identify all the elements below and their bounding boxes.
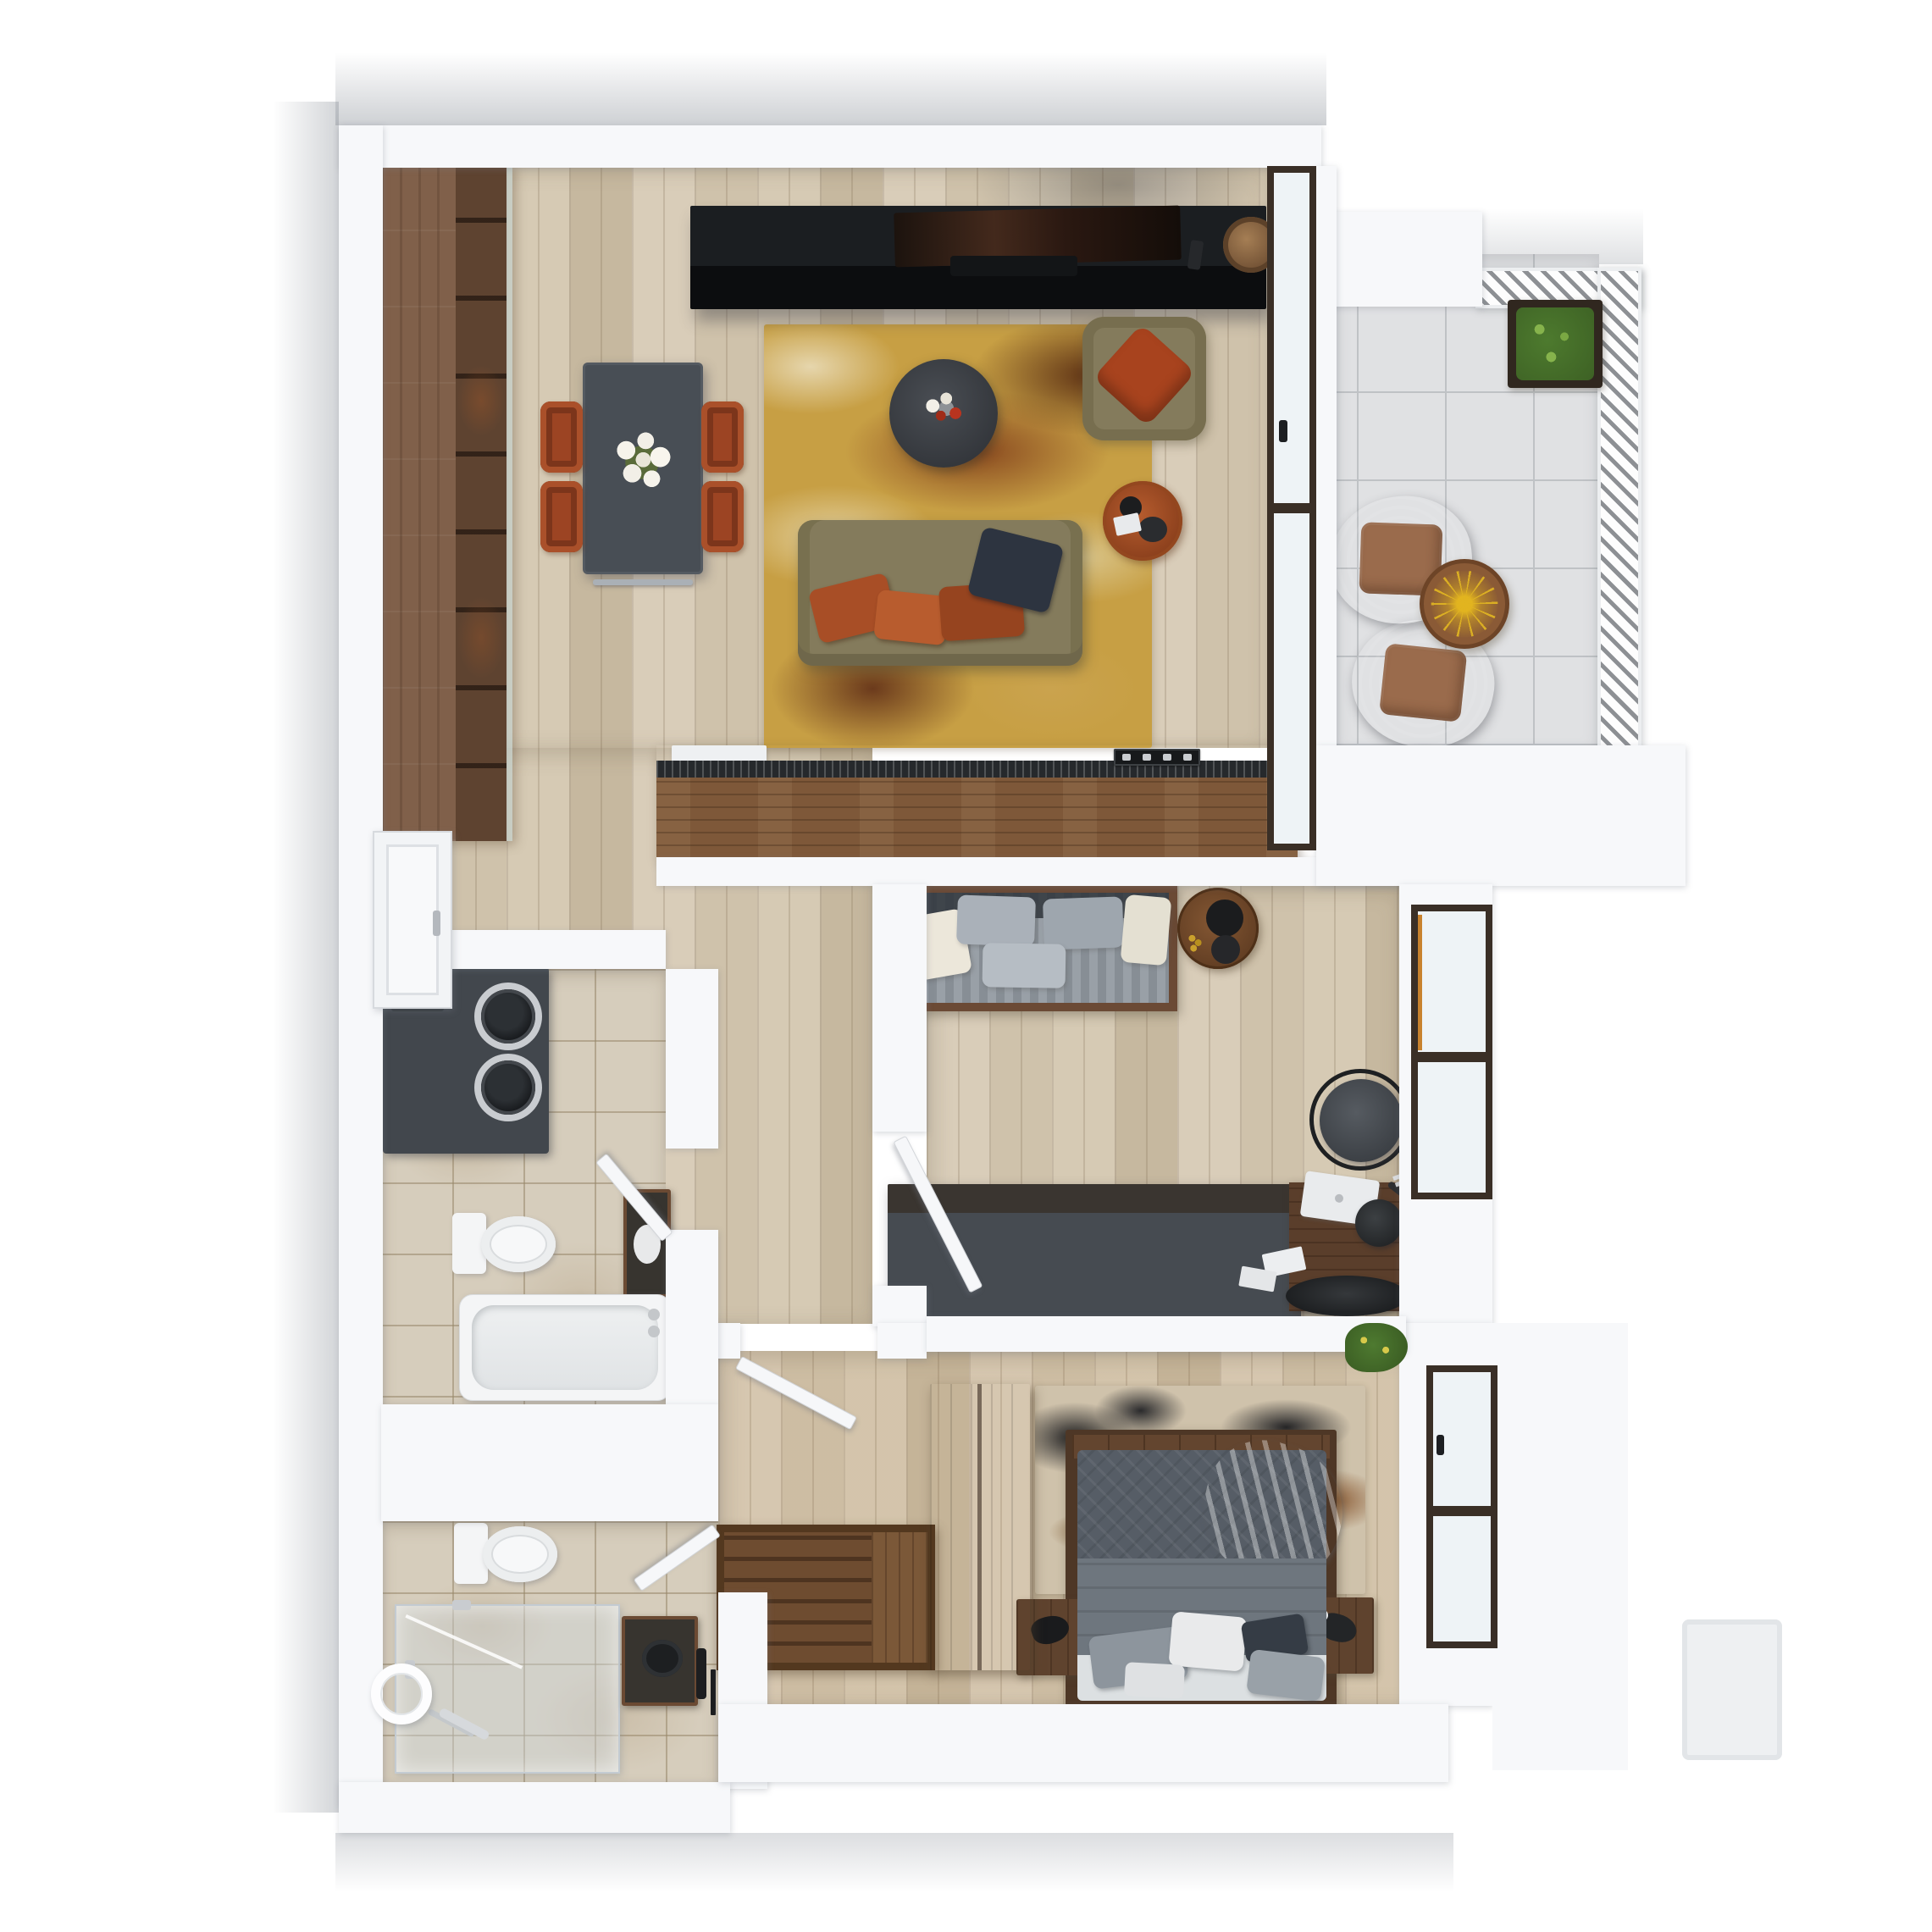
towel-ring: [371, 1664, 432, 1724]
exterior-ledge-bedroom: [1492, 1323, 1628, 1770]
floor-plan-canvas: [0, 0, 1932, 1932]
dining-flower-centerpiece: [612, 429, 673, 496]
kitchen-cabinet-top: [381, 163, 456, 841]
shower-glass-handle: [452, 1600, 471, 1610]
cooktop-knob: [1163, 754, 1171, 761]
wall-bathroom1-east-upper: [666, 969, 718, 1149]
window-rail: [1272, 503, 1311, 513]
daybed-pillow-gray: [983, 943, 1066, 988]
living-balcony-glass-door: [1267, 166, 1316, 850]
sofa-pillow-orange: [873, 590, 949, 645]
window-handle: [1437, 1435, 1444, 1455]
cooktop-knob: [1122, 754, 1131, 761]
bed-pillow-white: [1168, 1611, 1247, 1671]
bathtub-basin: [472, 1305, 658, 1390]
wall-hall-entry-right: [877, 1323, 927, 1359]
nightstand-decor: [1028, 1611, 1072, 1648]
living-side-table: [1103, 481, 1182, 561]
wall-office-bedroom: [927, 1316, 1406, 1352]
wall-south-west: [339, 1782, 730, 1833]
wall-hall-office-upper: [872, 884, 927, 1132]
daybed-pillow-gray: [956, 894, 1036, 946]
cooktop-knob: [1143, 754, 1151, 761]
double-bed: [1077, 1450, 1326, 1701]
wicker-chair-cushion: [1379, 643, 1467, 722]
office-side-table: [1177, 888, 1259, 969]
wall-bathroom1-east-lower: [666, 1230, 718, 1404]
kitchen-cabinet-fronts: [456, 163, 507, 841]
toilet-bowl: [483, 1526, 557, 1582]
wall-north: [339, 125, 1321, 168]
desk-tray: [1286, 1276, 1408, 1316]
dryer-drum-door: [481, 1060, 535, 1115]
balcony-door-handle: [1279, 420, 1287, 442]
wall-south-east: [718, 1704, 1448, 1782]
kitchen-island-wood-front: [656, 778, 1298, 859]
entry-door-handle: [433, 911, 440, 936]
wardrobe: [930, 1384, 1030, 1670]
magazine: [1113, 512, 1142, 536]
toilet: [454, 1521, 557, 1584]
office-window: [1411, 905, 1492, 1199]
window-rail: [1431, 1506, 1492, 1516]
dining-chair: [701, 401, 744, 473]
bathtub: [459, 1294, 671, 1401]
balcony-planter: [1508, 300, 1603, 388]
laptop-logo: [1334, 1193, 1343, 1203]
bathroom2-sink-cabinet: [622, 1616, 698, 1706]
daybed: [894, 884, 1177, 1011]
kitchen-cabinet-glass-edge: [507, 163, 512, 841]
wall-balcony-south: [1316, 745, 1686, 886]
dining-table-bench-bar: [593, 579, 693, 585]
washer-drum-door: [481, 989, 535, 1044]
exterior-shadow-left: [273, 102, 339, 1813]
gold-sprig: [1187, 932, 1203, 954]
exterior-shadow-top: [335, 53, 1326, 125]
coffee-table-flowers: [916, 386, 971, 435]
cooktop-knob: [1183, 754, 1192, 761]
window-frame-accent: [1418, 915, 1422, 1050]
dining-chair: [540, 401, 583, 473]
teacup: [1211, 935, 1240, 964]
wall-hall-office-lower: [872, 1286, 927, 1326]
toilet: [452, 1211, 559, 1277]
soundbar: [950, 256, 1077, 276]
armchair-cushion: [1093, 324, 1195, 426]
kitchen-countertop: [656, 761, 1298, 778]
wall-under-counter: [656, 857, 1406, 886]
bedroom-window: [1426, 1365, 1497, 1648]
planter-greenery: [1516, 307, 1594, 380]
armchair: [1082, 317, 1206, 440]
exterior-shadow-bottom: [335, 1833, 1453, 1892]
dining-chair: [540, 481, 583, 552]
toilet-bowl: [481, 1216, 556, 1272]
decor-bowl: [1138, 517, 1167, 542]
desk-lamp: [1355, 1199, 1403, 1247]
window-rail: [1416, 1052, 1487, 1062]
bed-pillow-white: [1124, 1662, 1185, 1699]
dining-chair: [701, 481, 744, 552]
daybed-pillow-white: [1121, 894, 1172, 966]
cooktop: [1114, 749, 1200, 766]
bathtub-faucet: [648, 1309, 660, 1320]
bench-seat: [872, 1532, 927, 1663]
shower-tray: [1682, 1619, 1782, 1760]
kitchen-cabinets: [381, 163, 512, 841]
bed-pillow-gray: [1246, 1649, 1326, 1702]
sofa: [798, 520, 1082, 666]
balcony-bistro-table: [1420, 559, 1509, 649]
daybed-pillow-gray: [1043, 896, 1124, 949]
kitchen-island: [656, 745, 1298, 859]
stool: [1320, 1079, 1403, 1162]
balcony-railing-right: [1597, 268, 1641, 766]
floor-faucet: [696, 1648, 706, 1699]
entry-door: [373, 831, 452, 1009]
wall-between-bathrooms: [381, 1404, 718, 1521]
vessel-sink: [642, 1640, 683, 1677]
wall-balcony-north: [1331, 212, 1482, 307]
kettle: [1206, 900, 1243, 937]
shower-glass-door: [405, 1614, 523, 1669]
